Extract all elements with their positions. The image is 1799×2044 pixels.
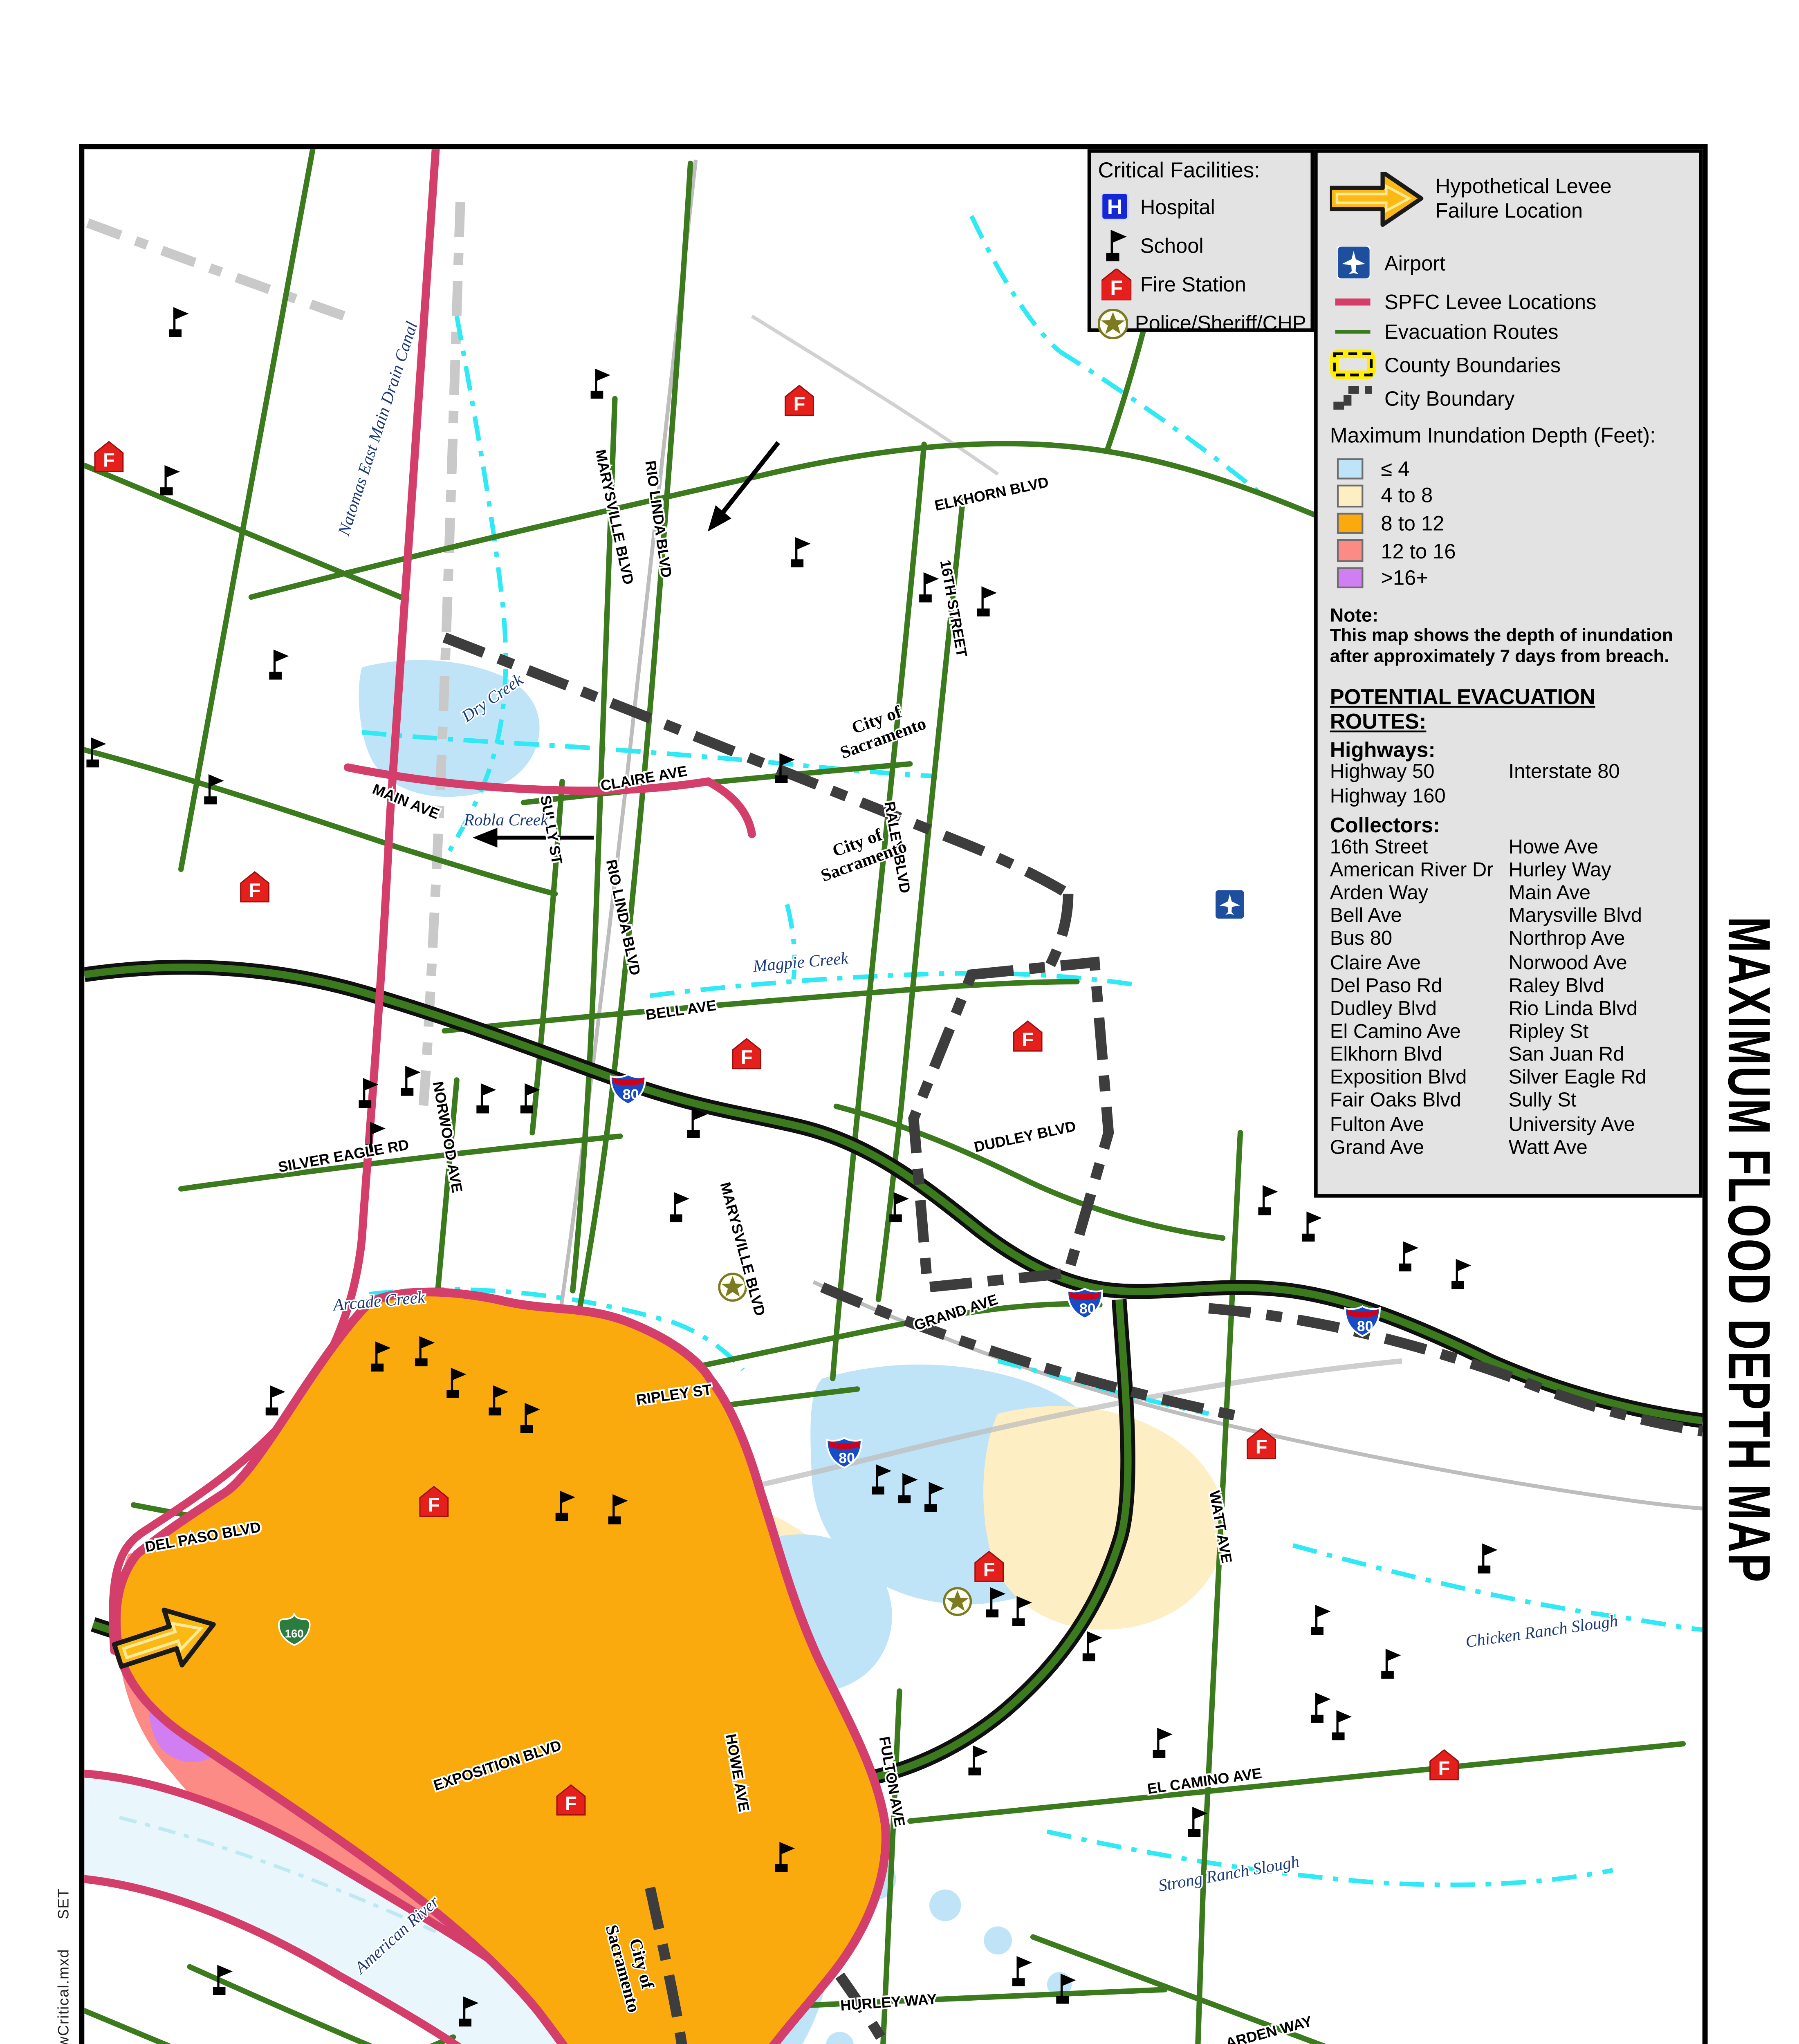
- interstate-shield: 80: [1344, 1306, 1379, 1336]
- note-title: Note:: [1330, 606, 1687, 627]
- road-label: ELKHORN BLVD: [933, 473, 1050, 514]
- gray-dashed-boundary-shape: [423, 202, 460, 1106]
- hospital-icon: H: [1098, 193, 1133, 222]
- legend-item-county-boundaries: County Boundaries: [1330, 350, 1687, 379]
- legend-critical-facilities: Critical Facilities: H Hospital School F…: [1088, 149, 1314, 332]
- depth-swatch-label: 4 to 8: [1381, 484, 1433, 508]
- flood-depth-polygons-shape: [929, 1889, 960, 1921]
- school-marker-shape: [477, 1085, 493, 1112]
- gray-dashed-boundary-shape: [87, 223, 344, 316]
- legend-item-airport: Airport: [1330, 246, 1687, 279]
- svg-text:80: 80: [838, 1450, 855, 1466]
- creek-label: Chicken Ranch Slough: [1464, 1611, 1618, 1651]
- school-marker-shape: [920, 574, 935, 601]
- fire-marker: F: [94, 442, 123, 471]
- school-marker-shape: [1382, 1650, 1398, 1678]
- collector-route-item: Main Ave: [1509, 883, 1687, 907]
- school-marker: [270, 651, 286, 679]
- depth-class-row: 8 to 12: [1333, 510, 1687, 537]
- page: 8080808016050 FFFFFFFFFFFFFFHH MARYSVILL…: [0, 0, 1799, 2044]
- svg-text:F: F: [982, 1559, 994, 1581]
- svg-text:F: F: [248, 880, 260, 901]
- legend-item-label: Airport: [1384, 250, 1445, 275]
- highways-col1: Highway 50Highway 160: [1330, 763, 1509, 809]
- school-marker: [978, 588, 994, 615]
- evacuation-routes-shape: [444, 982, 1077, 1031]
- highway-route-item: Interstate 80: [1509, 763, 1687, 786]
- depth-swatch-label: ≤ 4: [1381, 456, 1409, 481]
- collector-route-item: Ripley St: [1509, 1022, 1687, 1045]
- collectors-heading: Collectors:: [1330, 813, 1687, 837]
- collector-route-item: Marysville Blvd: [1509, 907, 1687, 930]
- place-label: City ofSacramento: [830, 696, 928, 763]
- school-marker-shape: [170, 309, 186, 336]
- collector-route-item: Dudley Blvd: [1330, 999, 1509, 1022]
- svg-text:80: 80: [1356, 1318, 1373, 1334]
- svg-text:F: F: [1255, 1437, 1267, 1458]
- school-marker-shape: [670, 1194, 686, 1221]
- school-marker: [688, 1109, 704, 1137]
- school-marker: [969, 1747, 985, 1774]
- evacuation-routes-shape: [909, 1744, 1682, 1821]
- school-marker-shape: [402, 1067, 417, 1095]
- collector-route-item: University Ave: [1509, 1114, 1687, 1138]
- school-marker: [1332, 1712, 1348, 1739]
- school-marker: [1452, 1261, 1468, 1288]
- school-marker-shape: [688, 1109, 704, 1137]
- school-marker-shape: [270, 651, 286, 679]
- school-marker-shape: [1189, 1809, 1205, 1836]
- city-boundary-icon: [1330, 385, 1376, 411]
- svg-text:F: F: [740, 1047, 752, 1068]
- school-marker: [1013, 1958, 1029, 1985]
- evacuation-routes-title: POTENTIAL EVACUATION ROUTES:: [1330, 686, 1687, 735]
- legend-item-evacuation-routes: Evacuation Routes: [1330, 320, 1687, 344]
- school-marker: [1189, 1809, 1205, 1836]
- svg-text:80: 80: [1079, 1300, 1095, 1317]
- road-label: 16TH STREET: [936, 558, 970, 658]
- creek-label: Robla Creek: [463, 810, 547, 829]
- legend-item-label: County Boundaries: [1384, 352, 1561, 377]
- school-marker: [792, 539, 808, 566]
- page-title-vertical: MAXIMUM FLOOD DEPTH MAP: [1713, 917, 1781, 1583]
- depth-swatch: [1337, 457, 1363, 480]
- collector-route-item: San Juan Rd: [1509, 1045, 1687, 1069]
- school-marker-shape: [969, 1747, 985, 1774]
- flood-depth-polygons-shape: [825, 2032, 853, 2044]
- depth-swatch: [1337, 567, 1363, 589]
- note-text: This map shows the depth of inundation a…: [1330, 627, 1687, 670]
- levee-failure-arrow-icon: [1330, 172, 1425, 228]
- collector-route-item: Watt Ave: [1509, 1138, 1687, 1161]
- evacuation-route-icon: [1330, 329, 1376, 334]
- airport-marker: [1214, 890, 1244, 919]
- police-icon: [1098, 308, 1128, 338]
- school-marker: [1478, 1545, 1494, 1572]
- collector-route-item: Hurley Way: [1509, 860, 1687, 883]
- city-boundary-lines-shape: [913, 962, 1108, 1287]
- collector-route-item: El Camino Ave: [1330, 1022, 1509, 1045]
- collector-route-item: Elkhorn Blvd: [1330, 1045, 1509, 1069]
- legend-item-label: Hypothetical Levee Failure Location: [1436, 176, 1646, 224]
- collector-route-item: Bell Ave: [1330, 907, 1509, 930]
- legend-main: Hypothetical Levee Failure Location Airp…: [1314, 149, 1703, 1198]
- school-marker: [170, 309, 186, 336]
- evacuation-routes-shape: [832, 444, 923, 1378]
- depth-swatch: [1337, 540, 1363, 562]
- city-boundary-lines-shape: [444, 637, 1068, 894]
- school-marker-shape: [1303, 1213, 1319, 1241]
- fire-marker: F: [1013, 1021, 1041, 1051]
- inundation-depth-title: Maximum Inundation Depth (Feet):: [1330, 423, 1687, 448]
- city-boundary-lines-shape: [1047, 894, 1068, 971]
- depth-swatch-label: 8 to 12: [1381, 511, 1444, 536]
- legend-item-label: Police/Sheriff/CHP: [1135, 311, 1306, 335]
- legend-item-label: SPFC Levee Locations: [1384, 290, 1597, 314]
- school-marker-shape: [1478, 1545, 1494, 1572]
- interstate-shield: 80: [1067, 1289, 1101, 1318]
- legend-item-label: Hospital: [1140, 195, 1215, 220]
- airport-marker-shape: [1214, 890, 1244, 919]
- creek-label: Magpie Creek: [751, 948, 849, 975]
- legend-item-fire-station: F Fire Station: [1098, 267, 1304, 302]
- depth-swatch-label: >16+: [1381, 566, 1428, 590]
- svg-text:F: F: [103, 449, 114, 471]
- school-marker: [1083, 1633, 1099, 1660]
- highway-route-item: Highway 50: [1330, 763, 1509, 786]
- depth-class-row: 12 to 16: [1333, 537, 1687, 565]
- police-marker-shape: [944, 1588, 970, 1615]
- collector-route-item: Norwood Ave: [1509, 953, 1687, 976]
- creek-lines-shape: [1047, 1831, 1613, 1885]
- evacuation-routes-shape: [572, 399, 614, 1291]
- svg-text:160: 160: [284, 1627, 303, 1640]
- school-marker: [1303, 1213, 1319, 1241]
- svg-text:F: F: [793, 393, 805, 415]
- depth-swatch: [1337, 512, 1363, 534]
- fire-station-icon: F: [1098, 269, 1133, 300]
- collector-route-item: 16th Street: [1330, 837, 1509, 861]
- collector-route-item: American River Dr: [1330, 860, 1509, 883]
- collector-route-item: Fair Oaks Blvd: [1330, 1091, 1509, 1115]
- school-marker: [402, 1067, 417, 1095]
- legend-item-police: Police/Sheriff/CHP: [1098, 305, 1304, 341]
- evacuation-routes-shape: [180, 149, 312, 869]
- county-boundary-icon: [1330, 350, 1376, 379]
- legend-item-hospital: H Hospital: [1098, 190, 1304, 225]
- flow-arrows-shape: [477, 831, 593, 845]
- legend-critical-title: Critical Facilities:: [1098, 158, 1304, 183]
- school-marker-shape: [1259, 1187, 1275, 1214]
- highway-route-item: Highway 160: [1330, 786, 1509, 809]
- svg-text:F: F: [1438, 1758, 1449, 1780]
- school-marker-shape: [1399, 1243, 1415, 1271]
- road-label: BELL AVE: [644, 997, 717, 1023]
- school-marker: [670, 1194, 686, 1221]
- fire-marker: F: [785, 385, 813, 415]
- legend-item-levee-failure: Hypothetical Levee Failure Location: [1330, 172, 1687, 228]
- collector-route-item: Howe Ave: [1509, 837, 1687, 861]
- file-path-note: 26Jan2015 Z:\Projects\1411980_CityofSac\…: [54, 1888, 72, 2044]
- creek-label: Strong Ranch Slough: [1156, 1852, 1300, 1895]
- school-marker-shape: [266, 1387, 282, 1414]
- school-marker-shape: [1452, 1261, 1468, 1288]
- creek-lines-shape: [787, 904, 794, 988]
- collector-route-item: Grand Ave: [1330, 1138, 1509, 1161]
- svg-text:F: F: [1109, 276, 1122, 299]
- legend-item-label: Fire Station: [1140, 272, 1246, 297]
- collector-route-item: Del Paso Rd: [1330, 976, 1509, 999]
- svg-text:H: H: [1107, 195, 1122, 219]
- fire-marker: F: [1247, 1429, 1275, 1459]
- school-marker: [1153, 1729, 1169, 1757]
- depth-class-row: ≤ 4: [1333, 455, 1687, 482]
- highways-col2: Interstate 80: [1509, 763, 1687, 809]
- interstate-shield: 80: [610, 1074, 645, 1104]
- airport-icon: [1330, 246, 1376, 279]
- creek-lines-shape: [971, 216, 1059, 351]
- inundation-depth-swatches: ≤ 44 to 88 to 1212 to 16>16+: [1333, 455, 1687, 592]
- legend-item-city-boundary: City Boundary: [1330, 385, 1687, 411]
- school-marker: [477, 1085, 493, 1112]
- collector-route-item: Bus 80: [1330, 930, 1509, 953]
- school-marker-shape: [161, 467, 177, 494]
- collectors-col1: 16th StreetAmerican River DrArden WayBel…: [1330, 837, 1509, 1161]
- depth-swatch-label: 12 to 16: [1381, 538, 1456, 563]
- flood-depth-polygons-shape: [983, 1926, 1012, 1954]
- legend-item-spfc-levee: SPFC Levee Locations: [1330, 290, 1687, 314]
- creek-lines-shape: [1292, 1545, 1702, 1629]
- svg-text:F: F: [565, 1793, 576, 1815]
- school-marker-shape: [1083, 1633, 1099, 1660]
- road-label: DUDLEY BLVD: [972, 1118, 1077, 1156]
- fire-marker: F: [732, 1039, 760, 1069]
- school-marker: [1259, 1187, 1275, 1214]
- svg-text:F: F: [428, 1494, 440, 1516]
- depth-class-row: >16+: [1333, 565, 1687, 592]
- collector-route-item: Fulton Ave: [1330, 1114, 1509, 1138]
- school-marker-shape: [1013, 1598, 1029, 1625]
- collector-route-item: Raley Blvd: [1509, 976, 1687, 999]
- legend-item-label: City Boundary: [1384, 385, 1514, 410]
- collector-route-item: Sully St: [1509, 1091, 1687, 1115]
- school-marker: [1382, 1650, 1398, 1678]
- spfc-levee-icon: [1330, 298, 1376, 306]
- school-marker-shape: [1153, 1729, 1169, 1757]
- legend-item-label: School: [1140, 233, 1204, 258]
- school-marker-shape: [1332, 1712, 1348, 1739]
- school-marker-shape: [792, 539, 808, 566]
- legend-item-school: School: [1098, 228, 1304, 263]
- collectors-col2: Howe AveHurley WayMain AveMarysville Blv…: [1509, 837, 1687, 1161]
- depth-swatch: [1337, 485, 1363, 507]
- fire-marker: F: [1429, 1750, 1458, 1780]
- highways-heading: Highways:: [1330, 738, 1687, 763]
- school-marker-shape: [978, 588, 994, 615]
- collector-route-item: Rio Linda Blvd: [1509, 999, 1687, 1022]
- svg-text:80: 80: [622, 1086, 638, 1103]
- school-marker: [920, 574, 935, 601]
- school-icon: [1098, 230, 1133, 262]
- school-marker: [161, 467, 177, 494]
- school-marker-shape: [1312, 1607, 1328, 1634]
- collector-route-item: Arden Way: [1330, 883, 1509, 907]
- school-marker-shape: [1312, 1694, 1328, 1722]
- road-label: NORWOOD AVE: [429, 1080, 465, 1194]
- school-marker: [1399, 1243, 1415, 1271]
- creek-lines-shape: [1059, 351, 1265, 497]
- school-marker-shape: [591, 370, 607, 398]
- legend-item-label: Evacuation Routes: [1384, 320, 1559, 344]
- spfc-levee-lines-shape: [116, 1292, 885, 2044]
- collector-route-item: Claire Ave: [1330, 953, 1509, 976]
- svg-text:F: F: [1021, 1029, 1033, 1051]
- school-marker: [591, 370, 607, 398]
- school-marker: [266, 1387, 282, 1414]
- evacuation-routes-shape: [137, 2037, 453, 2044]
- collector-route-item: Northrop Ave: [1509, 930, 1687, 953]
- school-marker-shape: [1013, 1958, 1029, 1985]
- fire-marker: F: [240, 872, 268, 902]
- school-marker: [1013, 1598, 1029, 1625]
- school-marker: [1312, 1607, 1328, 1634]
- collector-route-item: Exposition Blvd: [1330, 1068, 1509, 1091]
- depth-class-row: 4 to 8: [1333, 482, 1687, 510]
- collector-route-item: Silver Eagle Rd: [1509, 1068, 1687, 1091]
- school-marker: [1312, 1694, 1328, 1722]
- police-marker: [944, 1588, 970, 1615]
